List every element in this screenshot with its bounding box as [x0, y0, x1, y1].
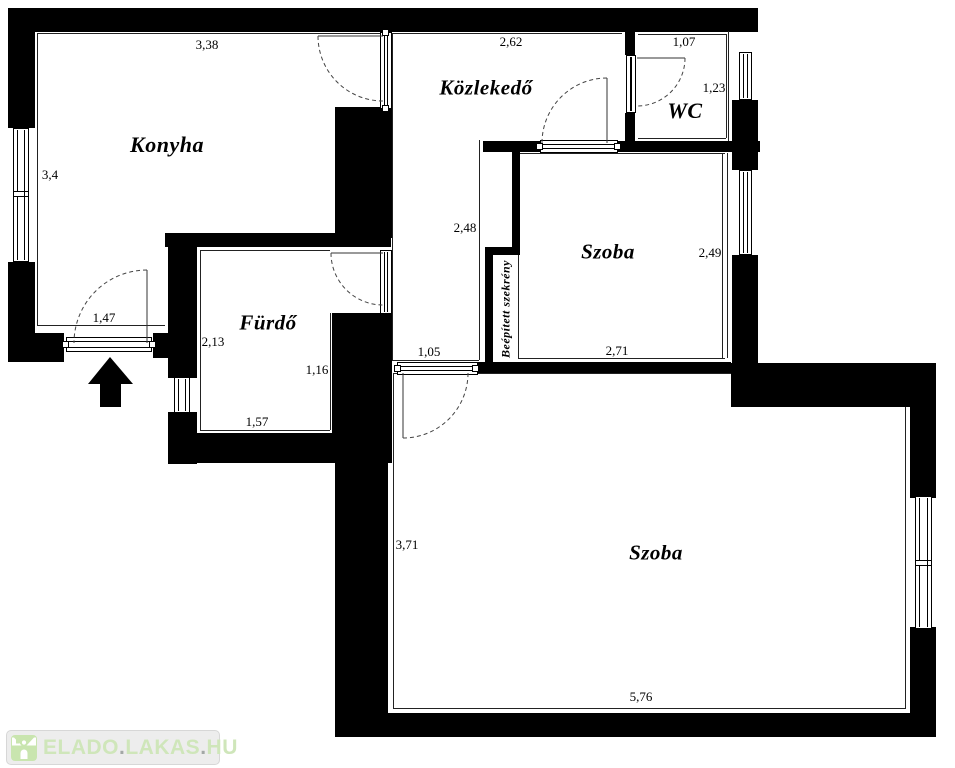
room-line — [37, 33, 383, 34]
wall-segment — [731, 363, 936, 407]
room-label-szekreny: Beépített szekrény — [499, 260, 514, 358]
window — [915, 496, 932, 629]
wall-segment — [335, 107, 392, 238]
dim-szoba1-width: 2,71 — [606, 343, 629, 359]
dim-wc-width: 1,07 — [673, 34, 696, 50]
watermark-word: HU — [207, 736, 238, 759]
door-arc — [542, 78, 607, 143]
window — [174, 377, 190, 413]
wall-segment — [910, 407, 936, 498]
window-divider — [14, 191, 28, 197]
watermark-text: ELADO.LAKAS.HU — [43, 736, 238, 760]
wall-segment — [625, 113, 635, 141]
wall-segment — [165, 233, 391, 247]
room-line — [200, 250, 330, 251]
dim-furdo-width: 1,57 — [246, 414, 269, 430]
room-line — [393, 373, 394, 708]
door-sill — [380, 32, 392, 109]
wall-segment — [732, 100, 758, 170]
wall-segment — [910, 627, 936, 717]
dim-konyha-width: 3,38 — [196, 37, 219, 53]
dim-konyha-height: 3,4 — [42, 167, 58, 183]
door-jamb — [536, 143, 543, 150]
dim-furdo-inner: 1,16 — [306, 362, 329, 378]
room-line — [393, 708, 906, 709]
room-line — [518, 255, 519, 359]
room-line — [330, 313, 331, 430]
floor-plan: Konyha Közlekedő WC Fürdő Szoba Szoba Be… — [0, 0, 955, 768]
dim-wc-height: 1,23 — [703, 80, 726, 96]
door-sill — [626, 55, 636, 113]
room-line — [722, 153, 723, 358]
room-label-furdo: Fürdő — [239, 311, 296, 336]
wall-segment — [335, 713, 936, 737]
dim-kozlekedo-width: 2,62 — [500, 34, 523, 50]
dim-kozlekedo-height: 2,48 — [454, 220, 477, 236]
window — [739, 52, 752, 100]
door-sill — [380, 250, 392, 314]
wall-segment — [168, 433, 390, 463]
door-arc — [318, 36, 383, 101]
room-label-szoba2: Szoba — [629, 541, 683, 566]
room-label-szoba1: Szoba — [581, 240, 635, 265]
room-line — [728, 31, 729, 141]
door-jamb — [472, 365, 479, 372]
watermark-logo: ELADO.LAKAS.HU — [6, 730, 220, 765]
room-line — [520, 153, 725, 154]
wall-segment — [153, 333, 197, 358]
dim-szoba1-height: 2,49 — [699, 245, 722, 261]
door-sill — [540, 140, 618, 153]
room-line — [200, 430, 330, 431]
door-jamb — [394, 365, 401, 372]
door-sill — [66, 337, 152, 352]
wall-segment — [485, 255, 493, 365]
wall-segment — [478, 362, 731, 373]
wall-segment — [8, 333, 64, 362]
wall-segment — [512, 150, 520, 255]
window — [13, 128, 29, 262]
window — [739, 170, 752, 255]
watermark-word: ELADO — [43, 736, 119, 759]
room-line — [479, 140, 480, 360]
dim-furdo-height: 2,13 — [202, 334, 225, 350]
door-arc — [74, 270, 147, 343]
door-jamb — [382, 105, 389, 112]
room-line — [726, 34, 727, 138]
wall-segment — [625, 31, 635, 55]
room-line — [727, 153, 728, 358]
door-arc — [403, 373, 468, 438]
wall-segment — [335, 462, 388, 714]
window-divider — [916, 560, 931, 566]
door-arc — [331, 253, 383, 305]
room-line — [392, 360, 479, 361]
wall-segment — [8, 8, 35, 128]
door-sill — [397, 362, 478, 375]
door-jamb — [149, 341, 156, 348]
room-line — [392, 33, 393, 360]
dim-entrance-width: 1,47 — [93, 310, 116, 326]
room-line — [638, 138, 726, 139]
wall-segment — [485, 247, 520, 255]
door-jamb — [382, 29, 389, 36]
dim-szoba2-width: 5,76 — [630, 689, 653, 705]
entrance-arrow — [88, 357, 133, 407]
room-label-konyha: Konyha — [130, 132, 204, 158]
watermark-word: LAKAS — [125, 736, 200, 759]
room-label-wc: WC — [667, 98, 702, 124]
door-jamb — [614, 143, 621, 150]
dim-kozlekedo-door: 1,05 — [418, 344, 441, 360]
room-line — [905, 407, 906, 709]
room-label-kozlekedo: Közlekedő — [439, 76, 532, 101]
wall-segment — [732, 255, 758, 365]
door-jamb — [62, 341, 69, 348]
wall-segment — [8, 262, 35, 334]
room-line — [37, 33, 38, 325]
house-icon — [11, 735, 37, 761]
dim-szoba2-height: 3,71 — [396, 537, 419, 553]
